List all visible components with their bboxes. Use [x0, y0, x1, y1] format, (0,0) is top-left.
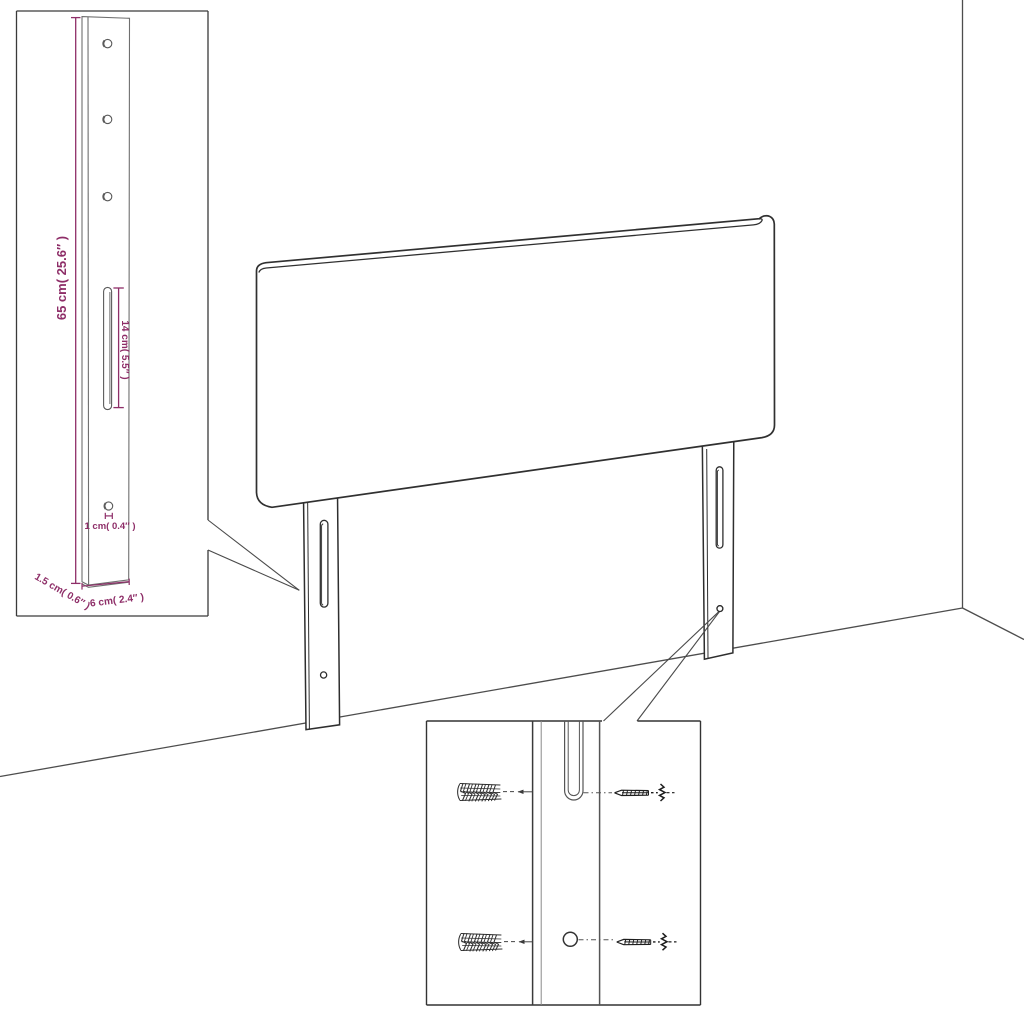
svg-text:1 cm( 0.4″ ): 1 cm( 0.4″ ): [84, 521, 135, 532]
svg-text:14 cm( 5.5″ ): 14 cm( 5.5″ ): [119, 320, 130, 379]
svg-text:1.5 cm( 0.6″ ): 1.5 cm( 0.6″ ): [32, 572, 91, 613]
svg-text:6 cm( 2.4″ ): 6 cm( 2.4″ ): [89, 592, 144, 610]
svg-text:65 cm( 25.6″ ): 65 cm( 25.6″ ): [54, 236, 69, 320]
